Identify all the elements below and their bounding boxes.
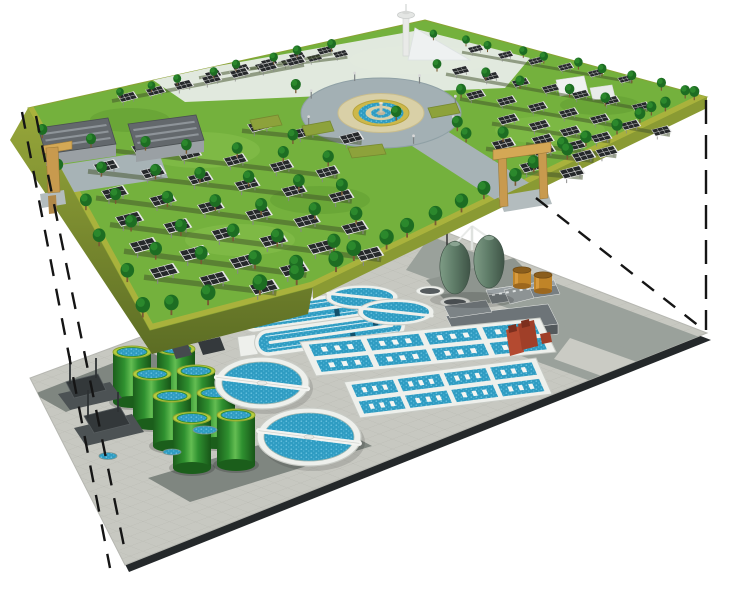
ground-pool bbox=[163, 449, 181, 455]
storage-tank-orange bbox=[513, 267, 531, 289]
digester-egg bbox=[474, 235, 504, 288]
fountain-spout bbox=[380, 104, 383, 113]
digester-egg bbox=[440, 241, 470, 294]
sludge-digester-tank bbox=[213, 409, 259, 473]
small-tank bbox=[416, 286, 444, 296]
illustration-canvas bbox=[0, 0, 740, 589]
sludge-digester-tank bbox=[169, 412, 215, 476]
secondary-clarifier bbox=[358, 299, 434, 325]
ground-pool bbox=[193, 426, 217, 434]
cutaway-illustration-underground-wwtp-beneath-solar-park bbox=[0, 0, 740, 589]
ground-pool bbox=[99, 453, 117, 460]
storage-tank-orange bbox=[534, 272, 552, 294]
